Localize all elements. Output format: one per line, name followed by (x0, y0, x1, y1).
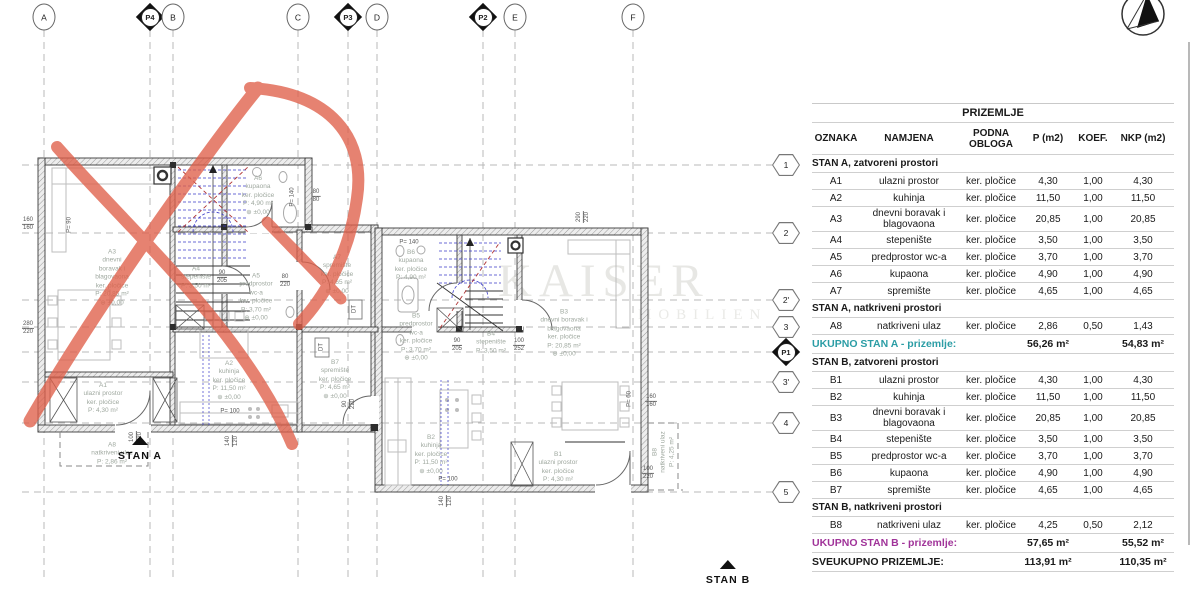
dimension-label: 280220 (22, 321, 34, 335)
total-label: SVEUKUPNO PRIZEMLJE: (812, 556, 1024, 568)
axis-marker-2: 2 (772, 222, 800, 244)
table-cell: A1 (812, 175, 860, 188)
table-cell: kupaona (860, 467, 958, 480)
table-cell: 4,30 (1024, 374, 1072, 387)
total-label: UKUPNO STAN B - prizemlje: (812, 537, 1024, 549)
table-cell: dnevni boravak i blagovaona (860, 406, 958, 430)
room-label: A3dnevniboravak iblagovaonaker. pločiceP… (95, 248, 129, 307)
axis-marker-c: C (287, 4, 310, 31)
axis-marker-4: 4 (772, 412, 800, 434)
table-cell: predprostor wc-a (860, 251, 958, 264)
dimension-label: DT (352, 305, 359, 313)
table-cell: 2,86 (1024, 320, 1072, 333)
table-cell: ker. pločice (958, 251, 1024, 264)
dimension-label: 140120 (225, 435, 239, 447)
room-label: B2kuhinjaker. pločiceP: 11,50 m²⊕ ±0,00 (414, 434, 447, 476)
dimension-label: P= 90 (67, 217, 74, 233)
axis-marker-f: F (622, 4, 645, 31)
table-cell: ker. pločice (958, 320, 1024, 333)
dimension-label: 90205 (452, 338, 462, 352)
table-cell: 3,70 (1024, 450, 1072, 463)
unit-label-text: STAN A (118, 450, 162, 462)
room-label: A4stepeništeP: 3,50 m² (181, 265, 211, 290)
dimension-label: P= 100 (220, 409, 239, 416)
table-cell: B4 (812, 433, 860, 446)
dimension-label: 90220 (342, 399, 356, 409)
table-cell: A5 (812, 251, 860, 264)
table-cell: ulazni prostor (860, 374, 958, 387)
axis-marker-p3: P3 (331, 0, 365, 34)
axis-marker-2p: 2' (772, 289, 800, 311)
table-cell: B2 (812, 391, 860, 404)
dimension-label: P= 140 (290, 187, 297, 206)
plan-annotations: A3dnevniboravak iblagovaonaker. pločiceP… (0, 0, 800, 590)
table-cell: A6 (812, 268, 860, 281)
table-cell: stepenište (860, 234, 958, 247)
axis-marker-d: D (366, 4, 389, 31)
table-cell: kuhinja (860, 391, 958, 404)
table-cell: spremište (860, 285, 958, 298)
total-p-value: 56,26 m² (1024, 338, 1072, 350)
table-cell: ker. pločice (958, 391, 1024, 404)
dimension-label: 290220 (576, 211, 590, 223)
dimension-label: 100220 (642, 466, 654, 480)
table-cell: ulazni prostor (860, 175, 958, 188)
table-cell: B5 (812, 450, 860, 463)
unit-label-text: STAN B (706, 574, 750, 586)
dimension-label: 160160 (22, 217, 34, 231)
table-cell: spremište (860, 484, 958, 497)
floor-plan-sheet: KAISER MOBILIEN (0, 0, 1200, 590)
table-cell: ker. pločice (958, 519, 1024, 532)
column-header: NAMJENA (860, 133, 958, 144)
axis-marker-a: A (33, 4, 56, 31)
room-label: A7spremišteker. pločiceP: 4,65 m²⊕ ±0,00 (321, 254, 354, 296)
table-cell: dnevni boravak i blagovaona (860, 207, 958, 231)
room-label: B3dnevni boravak iblagovaonaker. pločice… (540, 309, 587, 360)
dimension-label: 100252 (513, 338, 525, 352)
column-header: P (m2) (1024, 133, 1072, 144)
table-cell: 20,85 (1024, 412, 1072, 425)
table-cell: predprostor wc-a (860, 450, 958, 463)
table-cell: ker. pločice (958, 268, 1024, 281)
table-cell: ker. pločice (958, 192, 1024, 205)
column-header: OZNAKA (812, 133, 860, 144)
table-cell: B7 (812, 484, 860, 497)
table-cell: A4 (812, 234, 860, 247)
table-cell: ker. pločice (958, 433, 1024, 446)
table-cell: 4,65 (1024, 484, 1072, 497)
axis-marker-e: E (504, 4, 527, 31)
unit-triangle-icon (132, 436, 148, 445)
axis-marker-1: 1 (772, 154, 800, 176)
room-label: A6kupaonaker. pločiceP: 4,90 m²⊕ ±0,00 (242, 175, 275, 217)
table-title: PRIZEMLJE (962, 107, 1024, 119)
table-cell: A3 (812, 213, 860, 226)
table-cell: 11,50 (1024, 192, 1072, 205)
dimension-label: 80220 (280, 274, 290, 288)
table-cell: ker. pločice (958, 285, 1024, 298)
table-cell: ker. pločice (958, 484, 1024, 497)
table-cell: 11,50 (1024, 391, 1072, 404)
dimension-label: 160160 (645, 394, 657, 408)
room-label: A5predprostorwc-aker. pločiceP: 3,70 m²⊕… (239, 273, 272, 324)
table-cell: ker. pločice (958, 213, 1024, 226)
table-cell: 4,65 (1024, 285, 1072, 298)
table-cell: ker. pločice (958, 467, 1024, 480)
table-cell: 3,50 (1024, 234, 1072, 247)
table-cell: kupaona (860, 268, 958, 281)
room-label: B6kupaonaker. pločiceP: 4,90 m² (395, 249, 428, 283)
table-cell: 4,90 (1024, 268, 1072, 281)
table-cell: ker. pločice (958, 175, 1024, 188)
table-cell: kuhinja (860, 192, 958, 205)
table-cell: 20,85 (1024, 213, 1072, 226)
dimension-label: P= 100 (438, 477, 457, 484)
table-cell: ker. pločice (958, 234, 1024, 247)
table-cell: natkriveni ulaz (860, 320, 958, 333)
axis-marker-p2: P2 (466, 0, 500, 34)
total-label: UKUPNO STAN A - prizemlje: (812, 338, 1024, 350)
dimension-label: P= 140 (399, 240, 418, 247)
dimension-label: 140120 (439, 495, 453, 507)
axis-marker-3p: 3' (772, 371, 800, 393)
axis-marker-b: B (162, 4, 185, 31)
room-label: B5predprostorwc-aker. pločiceP: 3,70 m²⊕… (399, 313, 432, 364)
column-header: PODNA OBLOGA (958, 128, 1024, 150)
table-cell: stepenište (860, 433, 958, 446)
table-cell: A7 (812, 285, 860, 298)
dimension-label: P= 60 (627, 391, 634, 407)
dimension-label: 8080 (312, 189, 321, 203)
table-cell: 4,25 (1024, 519, 1072, 532)
room-label: B7spremišteker. pločiceP: 4,65 m²⊕ ±0,00 (319, 359, 352, 401)
table-cell: 3,50 (1024, 433, 1072, 446)
table-cell: ker. pločice (958, 450, 1024, 463)
dimension-label: DT (319, 343, 326, 351)
dimension-label: 90205 (217, 270, 227, 284)
table-cell: ker. pločice (958, 374, 1024, 387)
table-cell: B1 (812, 374, 860, 387)
table-cell: A2 (812, 192, 860, 205)
unit-triangle-icon (720, 560, 736, 569)
room-label: A1ulazni prostorker. pločiceP: 4,30 m² (83, 382, 122, 416)
table-cell: B3 (812, 412, 860, 425)
north-arrow-icon (1108, 0, 1200, 560)
unit-label: STAN A (118, 436, 162, 464)
room-label: B1ulazni prostorker. pločiceP: 4,30 m² (538, 451, 577, 485)
table-cell: ker. pločice (958, 412, 1024, 425)
room-label: A2kuhinjaker. pločiceP: 11,50 m²⊕ ±0,00 (212, 360, 245, 402)
table-cell: B8 (812, 519, 860, 532)
table-cell: 3,70 (1024, 251, 1072, 264)
total-p-value: 113,91 m² (1024, 556, 1072, 568)
axis-marker-5: 5 (772, 481, 800, 503)
table-cell: 4,30 (1024, 175, 1072, 188)
total-p-value: 57,65 m² (1024, 537, 1072, 549)
unit-label: STAN B (706, 560, 750, 588)
table-cell: 4,90 (1024, 467, 1072, 480)
axis-marker-p1: P1 (769, 335, 803, 369)
room-label: B8natkriveni ulazP: 4,25 m² (651, 431, 676, 473)
room-label: B4stepeništeP: 3,50 m² (476, 330, 506, 355)
table-cell: B6 (812, 467, 860, 480)
table-cell: A8 (812, 320, 860, 333)
table-cell: natkriveni ulaz (860, 519, 958, 532)
